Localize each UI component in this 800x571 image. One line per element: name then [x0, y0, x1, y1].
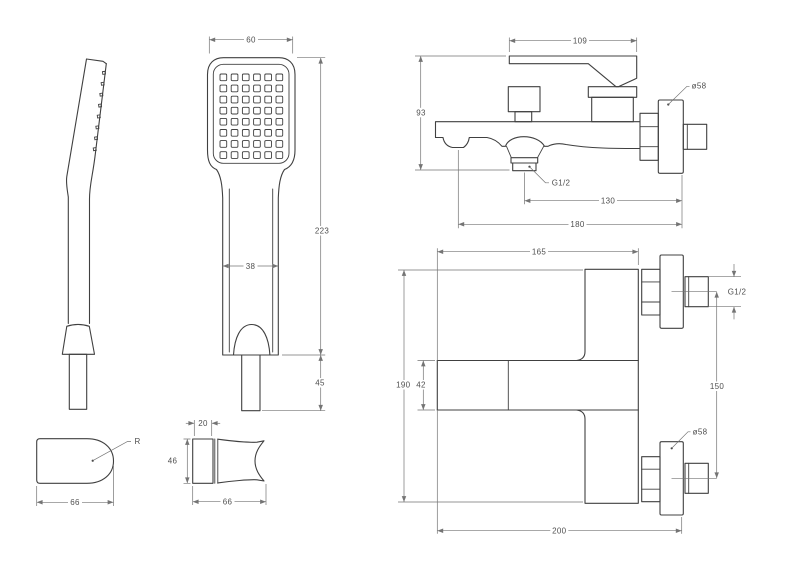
wand-cone-nut: [62, 324, 94, 354]
nozzle: [242, 74, 249, 81]
svg-text:66: 66: [223, 498, 233, 507]
nozzle: [254, 107, 261, 114]
nozzle: [231, 130, 238, 137]
svg-text:38: 38: [246, 262, 256, 271]
bracket-hook-profile: [218, 439, 264, 483]
svg-text:42: 42: [416, 381, 426, 390]
dim-label-g12-side: G1/2: [552, 179, 571, 188]
dim-label-223: 223: [313, 226, 331, 236]
nozzle: [254, 118, 261, 125]
nozzle: [231, 152, 238, 159]
svg-text:200: 200: [552, 527, 566, 536]
svg-text:93: 93: [416, 108, 426, 117]
nozzle: [231, 118, 238, 125]
wand-nozzle: [100, 93, 103, 96]
nozzle: [276, 107, 283, 114]
bracket-side-view: [184, 420, 267, 505]
wand-nozzle: [101, 82, 104, 85]
dim-ext: [437, 248, 638, 534]
nozzle: [265, 130, 272, 137]
hand-shower-side-view: [62, 59, 106, 409]
outlet-ring: [511, 158, 538, 163]
dim-label-dia58-side: ø58: [692, 82, 707, 91]
mixer-body-top: [436, 122, 641, 138]
dim-label-46: 46: [168, 457, 178, 466]
dim-label-60: 60: [244, 35, 258, 45]
wand-right-contour: [90, 64, 107, 324]
nozzle: [254, 130, 261, 137]
svg-text:ø58: ø58: [692, 82, 707, 91]
nozzle: [265, 141, 272, 148]
shower-nozzle-grid: [220, 74, 283, 158]
nozzle: [242, 118, 249, 125]
nozzle: [231, 85, 238, 92]
nozzle: [254, 152, 261, 159]
nozzle: [220, 130, 227, 137]
drawing-canvas: 60 223 38 45 109 93 ø58 G1/2 1: [0, 0, 800, 571]
wall-nut-top: [642, 269, 660, 315]
dim-label-130: 130: [599, 196, 617, 206]
mixer-body-bottom-contour: [436, 137, 641, 149]
bracket-top-outline: [37, 439, 114, 484]
nozzle: [276, 118, 283, 125]
wall-flange-side: [658, 100, 683, 173]
nozzle: [242, 96, 249, 103]
nozzle: [242, 85, 249, 92]
nozzle: [254, 74, 261, 81]
mixer-side-view: [415, 38, 707, 229]
dim-label-45: 45: [314, 378, 327, 388]
bracket-ring-lines: [215, 439, 218, 483]
nozzle: [276, 85, 283, 92]
wand-connector: [69, 354, 86, 409]
nozzle: [220, 152, 227, 159]
bracket-wall-plate: [193, 439, 213, 483]
nozzle: [265, 107, 272, 114]
nozzle: [276, 130, 283, 137]
svg-text:109: 109: [573, 37, 587, 46]
wall-nut-bottom: [642, 457, 660, 502]
diverter-stem: [515, 112, 532, 122]
dim-label-93: 93: [414, 108, 428, 118]
dim-ext: [458, 150, 682, 228]
wand-nozzle: [96, 126, 99, 129]
dim-label-20: 20: [197, 419, 209, 429]
nozzle: [276, 152, 283, 159]
svg-text:223: 223: [315, 227, 329, 236]
svg-text:45: 45: [315, 379, 325, 388]
diverter-knob: [508, 87, 540, 112]
svg-text:180: 180: [570, 220, 584, 229]
svg-text:190: 190: [396, 381, 410, 390]
mixer-neck: [592, 97, 634, 121]
nozzle: [220, 107, 227, 114]
mixer-lever: [509, 56, 636, 87]
nozzle: [276, 141, 283, 148]
wand-nozzle: [95, 137, 98, 140]
wall-nut-side: [640, 113, 658, 160]
nozzle: [276, 96, 283, 103]
mixer-front-view: [398, 248, 741, 534]
outlet-transition: [507, 146, 544, 157]
nozzle: [265, 152, 272, 159]
nozzle: [242, 130, 249, 137]
wand-top-edge: [87, 59, 107, 64]
nozzle: [265, 85, 272, 92]
wand-nozzle: [102, 71, 105, 74]
dim-ext: [415, 56, 510, 170]
dia58-leader: [668, 86, 689, 104]
nozzle: [242, 152, 249, 159]
nozzle: [242, 107, 249, 114]
wall-nipple-side: [683, 124, 706, 149]
nozzle: [265, 118, 272, 125]
dim-label-66-top: 66: [68, 498, 82, 508]
dim-label-109: 109: [571, 36, 589, 46]
nozzle: [254, 96, 261, 103]
g12-leader: [530, 167, 550, 183]
nozzle: [276, 74, 283, 81]
svg-text:130: 130: [601, 197, 615, 206]
wand-nozzle: [93, 148, 96, 151]
wand-nozzle-notches: [93, 71, 105, 150]
wand-left-contour: [66, 59, 86, 324]
dim-label-165: 165: [530, 247, 548, 257]
dim-label-g12-front: G1/2: [728, 287, 747, 296]
svg-text:G1/2: G1/2: [552, 179, 571, 188]
svg-text:46: 46: [168, 457, 178, 466]
shower-connector: [242, 355, 260, 411]
nozzle: [220, 85, 227, 92]
cartridge-collar: [588, 87, 636, 98]
dimension-labels: 60 223 38 45 109 93 ø58 G1/2 1: [68, 35, 747, 536]
dim-label-dia58-front: ø58: [693, 427, 708, 436]
nozzle: [254, 141, 261, 148]
svg-text:66: 66: [70, 498, 80, 507]
nozzle: [231, 74, 238, 81]
nozzle: [265, 96, 272, 103]
dim-label-200: 200: [550, 526, 568, 536]
nozzle: [220, 118, 227, 125]
mixer-body-outline: [577, 269, 639, 503]
dim-label-150: 150: [708, 382, 726, 392]
dim-label-66-side: 66: [221, 497, 235, 507]
svg-text:60: 60: [246, 36, 256, 45]
technical-drawing-page: 60 223 38 45 109 93 ø58 G1/2 1: [0, 0, 800, 571]
svg-text:20: 20: [198, 419, 208, 428]
dim-label-38: 38: [244, 261, 258, 271]
nozzle: [242, 141, 249, 148]
wand-nozzle: [97, 115, 100, 118]
svg-text:165: 165: [532, 248, 546, 257]
dim-label-190: 190: [395, 380, 411, 390]
wall-nut-top-facets: [642, 282, 660, 302]
nozzle: [231, 107, 238, 114]
dim-label-42: 42: [415, 380, 428, 390]
nozzle: [231, 141, 238, 148]
nozzle: [220, 141, 227, 148]
nozzle: [254, 85, 261, 92]
nozzle: [265, 74, 272, 81]
wand-nozzle: [99, 104, 102, 107]
nozzle: [231, 96, 238, 103]
dia58-leader: [672, 432, 691, 449]
nozzle: [220, 96, 227, 103]
dim-label-radius: R: [134, 437, 140, 446]
dim-label-180: 180: [569, 220, 587, 230]
nozzle: [220, 74, 227, 81]
svg-text:150: 150: [710, 382, 724, 391]
svg-text:ø58: ø58: [693, 427, 708, 436]
bracket-top-view: [37, 439, 131, 506]
wall-nut-facets: [640, 127, 658, 147]
svg-text:R: R: [134, 437, 140, 446]
svg-text:G1/2: G1/2: [728, 287, 747, 296]
handle-arch-cutout: [234, 325, 270, 356]
hand-shower-front-view: [208, 37, 326, 411]
wall-nut-bottom-facets: [642, 469, 660, 489]
